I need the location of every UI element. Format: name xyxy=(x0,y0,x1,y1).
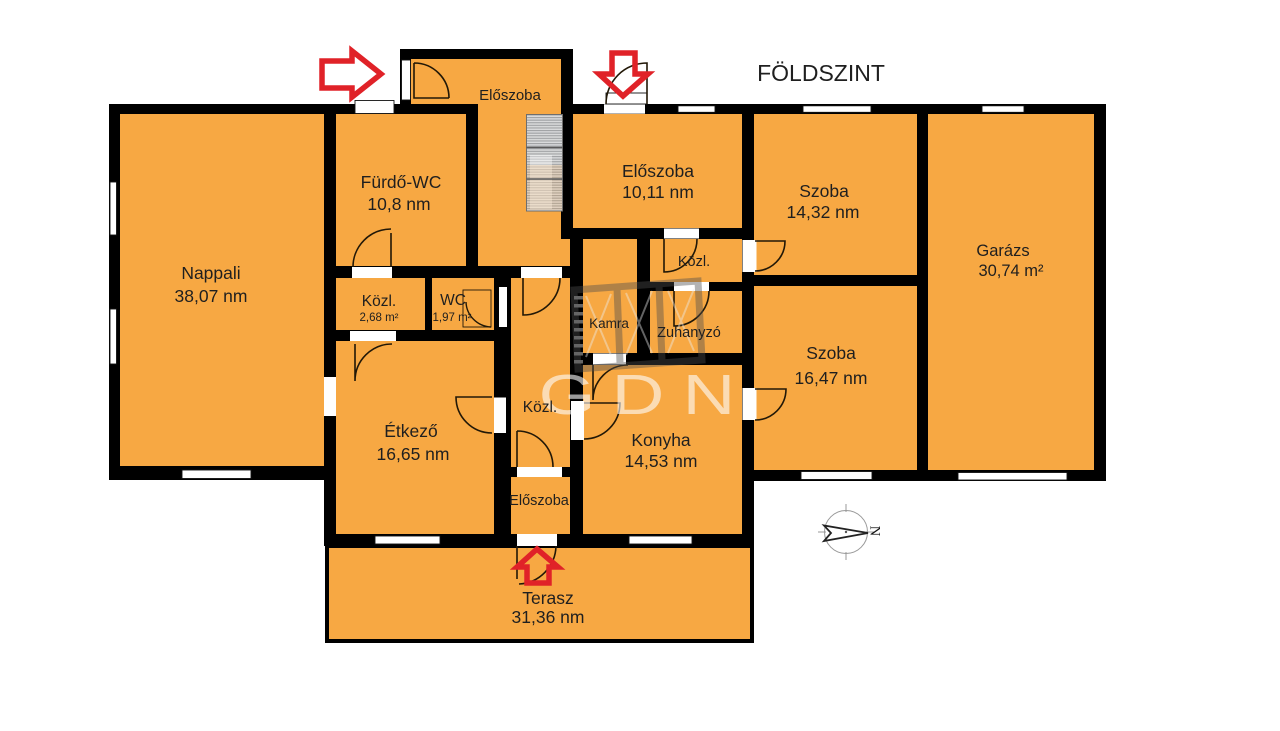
svg-text:16,47 nm: 16,47 nm xyxy=(795,368,868,388)
svg-text:Garázs: Garázs xyxy=(976,242,1029,260)
svg-text:WC: WC xyxy=(440,292,466,309)
svg-text:G: G xyxy=(539,363,596,427)
svg-text:Előszoba: Előszoba xyxy=(509,493,570,509)
svg-text:Közl.: Közl. xyxy=(362,293,396,310)
svg-text:Terasz: Terasz xyxy=(522,588,574,608)
svg-text:10,11 nm: 10,11 nm xyxy=(622,182,694,202)
svg-text:16,65 nm: 16,65 nm xyxy=(377,444,450,464)
svg-text:Szoba: Szoba xyxy=(799,181,849,201)
svg-text:38,07 nm: 38,07 nm xyxy=(175,286,248,306)
svg-text:Előszoba: Előszoba xyxy=(479,87,541,104)
svg-text:2,68 m²: 2,68 m² xyxy=(360,312,399,324)
svg-text:Közl.: Közl. xyxy=(523,399,557,416)
svg-text:N: N xyxy=(867,526,883,537)
svg-text:14,32 nm: 14,32 nm xyxy=(787,202,860,222)
svg-text:Étkező: Étkező xyxy=(384,421,438,441)
svg-text:Szoba: Szoba xyxy=(806,343,856,363)
svg-text:14,53 nm: 14,53 nm xyxy=(625,451,698,471)
svg-text:D: D xyxy=(612,363,665,427)
svg-text:Nappali: Nappali xyxy=(181,263,240,283)
svg-text:1,97 m²: 1,97 m² xyxy=(433,312,472,324)
svg-text:Kamra: Kamra xyxy=(589,316,629,331)
svg-text:Előszoba: Előszoba xyxy=(622,161,694,181)
svg-text:Zuhanyzó: Zuhanyzó xyxy=(657,325,721,341)
svg-text:FÖLDSZINT: FÖLDSZINT xyxy=(757,60,885,86)
svg-text:10,8 nm: 10,8 nm xyxy=(367,194,430,214)
svg-text:N: N xyxy=(683,363,736,427)
svg-text:31,36 nm: 31,36 nm xyxy=(512,607,585,627)
svg-text:Konyha: Konyha xyxy=(631,430,691,450)
svg-text:Fürdő-WC: Fürdő-WC xyxy=(361,172,442,192)
svg-text:Közl.: Közl. xyxy=(678,254,710,270)
svg-text:30,74 m²: 30,74 m² xyxy=(978,262,1044,280)
